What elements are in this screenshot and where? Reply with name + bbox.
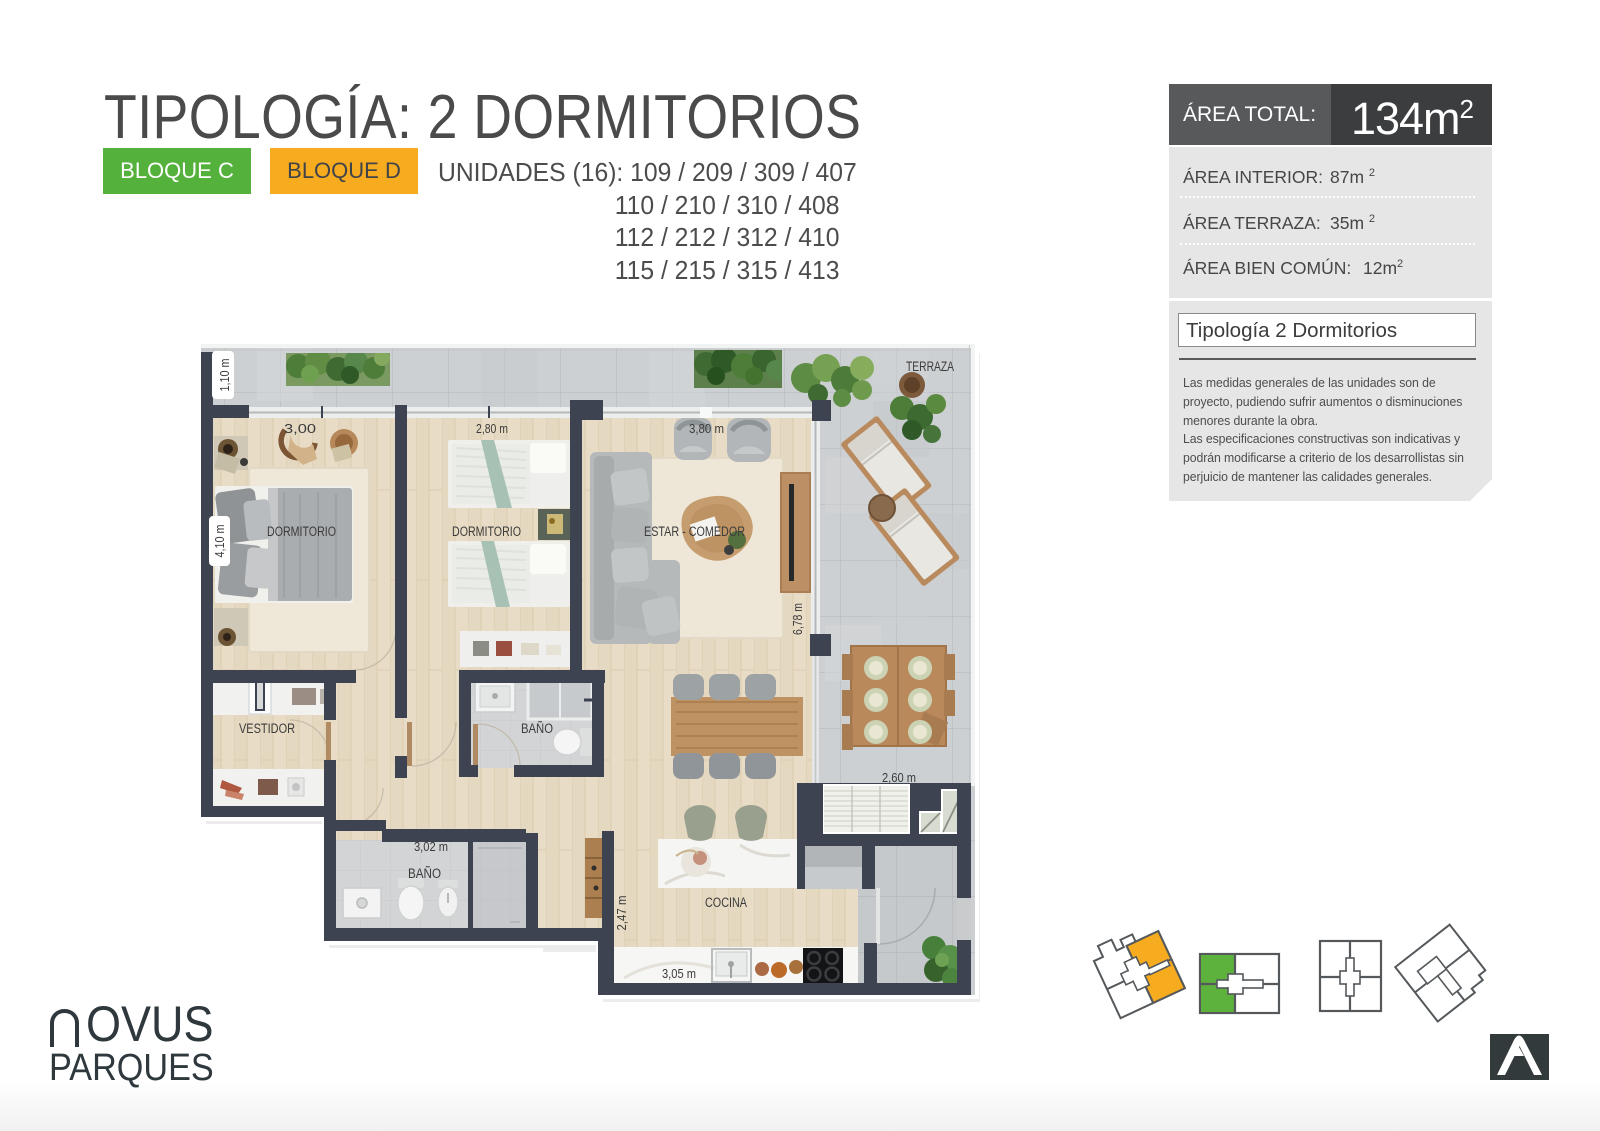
svg-text:6,78 m: 6,78 m bbox=[790, 603, 805, 635]
svg-text:4,10 m: 4,10 m bbox=[212, 525, 227, 558]
svg-text:3,00: 3,00 bbox=[284, 421, 316, 436]
svg-text:TERRAZA: TERRAZA bbox=[906, 359, 954, 374]
svg-text:DORMITORIO: DORMITORIO bbox=[452, 524, 521, 539]
svg-text:VESTIDOR: VESTIDOR bbox=[239, 721, 295, 736]
svg-text:COCINA: COCINA bbox=[705, 895, 747, 910]
svg-text:DORMITORIO: DORMITORIO bbox=[267, 524, 336, 539]
svg-text:2,60 m: 2,60 m bbox=[882, 770, 916, 785]
svg-text:3,02 m: 3,02 m bbox=[414, 839, 448, 854]
svg-text:BAÑO: BAÑO bbox=[408, 866, 441, 881]
svg-text:2,47 m: 2,47 m bbox=[614, 896, 629, 931]
svg-text:3,05 m: 3,05 m bbox=[662, 966, 696, 981]
svg-text:2,80 m: 2,80 m bbox=[476, 421, 508, 436]
svg-text:1,10 m: 1,10 m bbox=[217, 359, 232, 392]
svg-text:ESTAR - COMEDOR: ESTAR - COMEDOR bbox=[644, 524, 745, 539]
svg-text:3,80 m: 3,80 m bbox=[689, 421, 724, 436]
svg-text:BAÑO: BAÑO bbox=[521, 721, 553, 736]
